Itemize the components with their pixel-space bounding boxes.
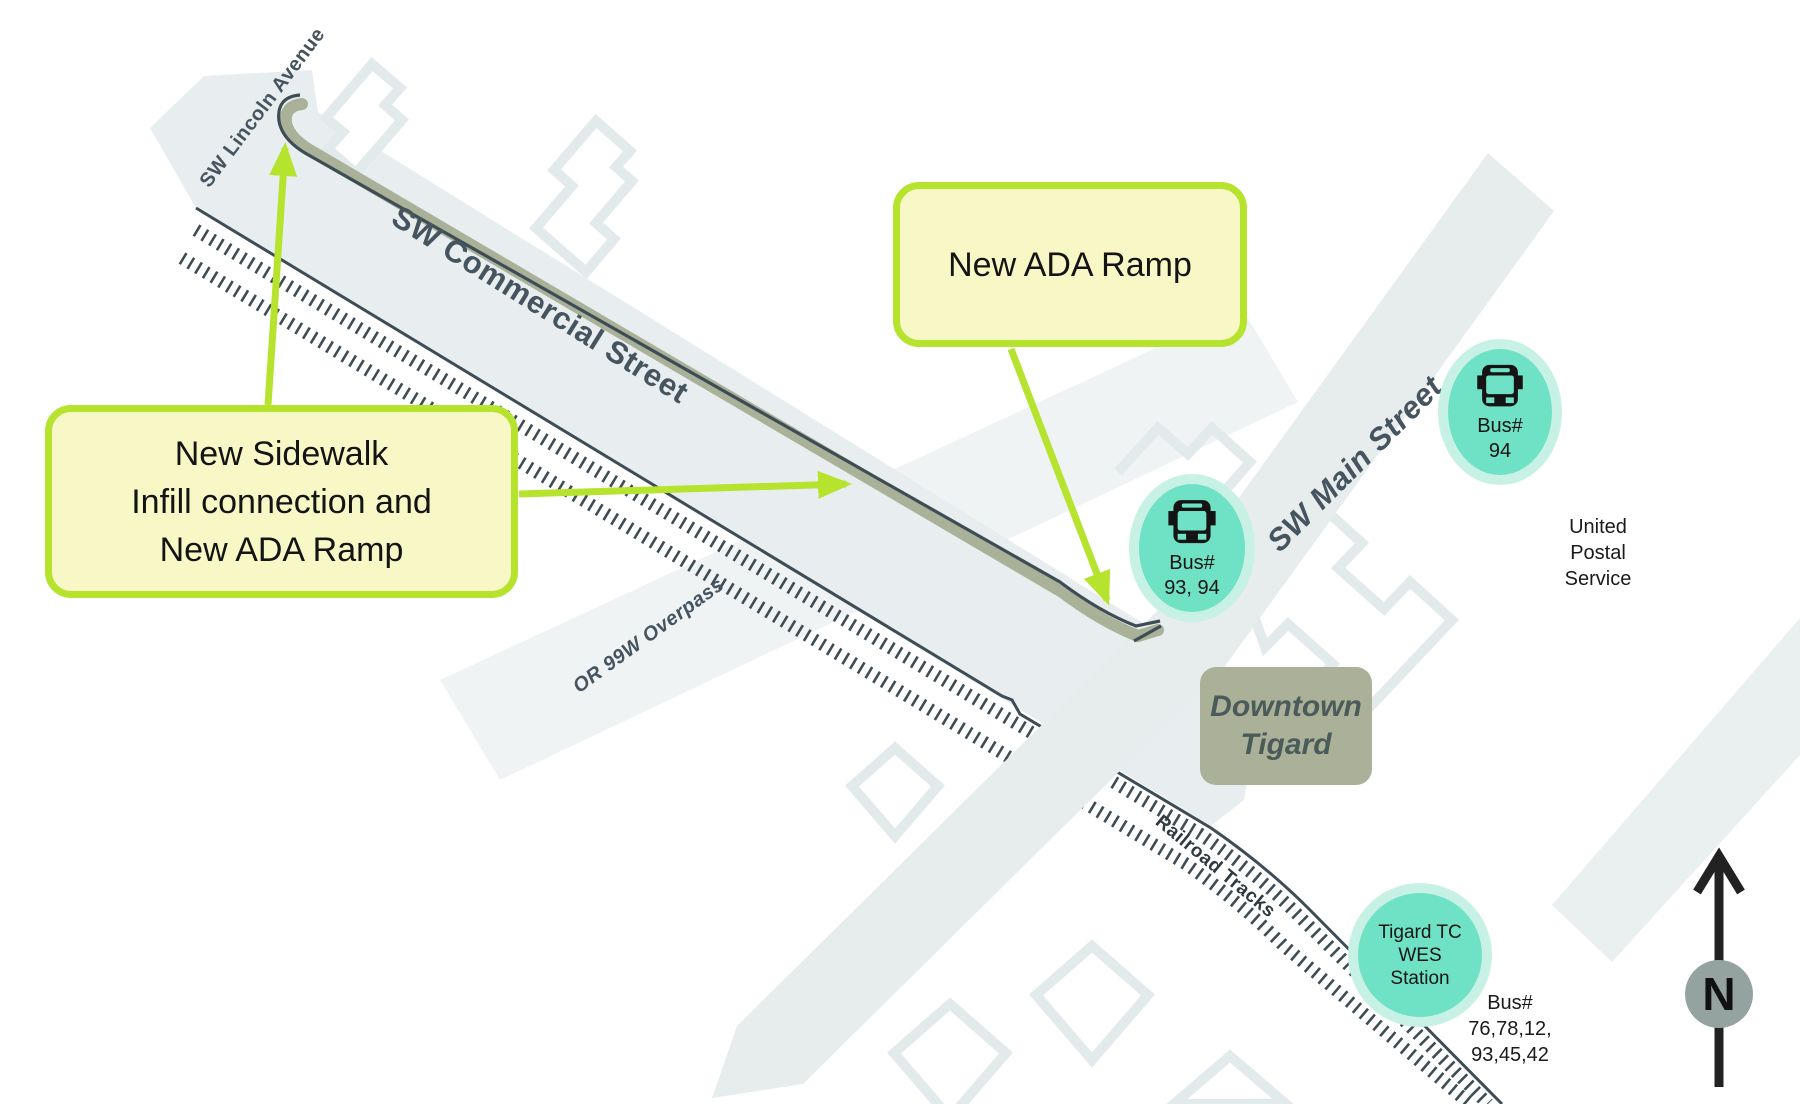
usps-line: Service [1565,566,1632,592]
bus-icon [1474,360,1526,412]
downtown-line: Downtown [1210,688,1362,726]
building-outline [1174,1056,1286,1104]
side-street-band [1552,618,1800,962]
bus-icon [1165,495,1219,549]
usps-line: United [1565,514,1632,540]
north-arrow-icon: N [1685,856,1753,1087]
bus-stop-93-94: Bus# 93, 94 [1139,484,1245,612]
usps-line: Postal [1565,540,1632,566]
building-outline [536,121,632,272]
downtown-tigard-box: Downtown Tigard [1200,667,1372,785]
wes-station-circle: Tigard TC WES Station [1358,893,1482,1017]
bus-stop-94: Bus# 94 [1448,349,1552,475]
tigard-improvements-map: N SW Lincoln Avenue SW Commercial Street… [0,0,1800,1104]
usps-label: United Postal Service [1565,514,1632,592]
building-outline [894,1004,1006,1104]
callout-ada-ramp: New ADA Ramp [893,182,1247,347]
building-outline [326,64,402,173]
callout-sidewalk-line: New ADA Ramp [160,526,404,574]
bus-routes-line: 76,78,12, [1468,1016,1551,1042]
wes-station-line: Station [1390,967,1449,990]
compass-n-label: N [1702,968,1735,1020]
bus-stop-label: Bus# [1169,551,1215,576]
building-outline [1036,946,1148,1060]
bus-routes-line: Bus# [1468,990,1551,1016]
wes-station-line: WES [1398,944,1441,967]
building-outline [852,748,938,836]
callout-sidewalk-infill: New Sidewalk Infill connection and New A… [45,405,518,598]
callout-ada-label: New ADA Ramp [948,241,1192,289]
bus-stop-label: Bus# [1477,414,1523,439]
callout-sidewalk-line: New Sidewalk [175,430,389,478]
bus-routes-line: 93,45,42 [1468,1042,1551,1068]
wes-station-line: Tigard TC [1378,921,1461,944]
bus-stop-routes: 93, 94 [1164,576,1220,601]
bus-stop-routes: 94 [1489,439,1511,464]
wes-station-bus-routes: Bus# 76,78,12, 93,45,42 [1468,990,1551,1068]
callout-sidewalk-line: Infill connection and [131,478,432,526]
downtown-line: Tigard [1240,726,1331,764]
